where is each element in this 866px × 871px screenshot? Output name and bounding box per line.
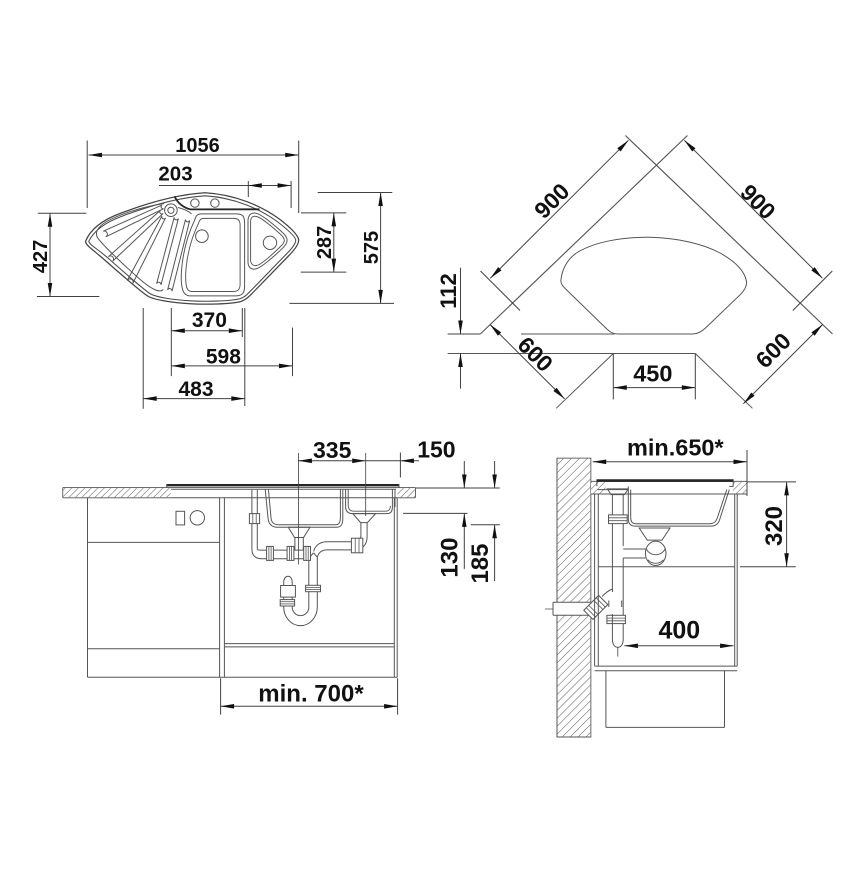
svg-text:575: 575 [361,231,383,264]
svg-text:427: 427 [30,240,52,273]
svg-text:130: 130 [436,538,463,578]
svg-text:1056: 1056 [175,135,220,157]
svg-text:287: 287 [314,226,336,259]
svg-text:320: 320 [761,506,788,546]
svg-text:400: 400 [658,617,700,645]
svg-text:335: 335 [313,437,352,463]
svg-text:203: 203 [158,162,192,185]
svg-text:min. 700*: min. 700* [258,680,364,707]
svg-text:483: 483 [178,378,213,401]
svg-text:450: 450 [633,361,672,387]
svg-text:min.650*: min.650* [627,434,725,460]
svg-text:598: 598 [206,346,241,369]
svg-text:185: 185 [467,543,494,583]
svg-text:150: 150 [417,436,455,462]
svg-text:370: 370 [192,309,227,332]
svg-text:112: 112 [436,273,461,309]
